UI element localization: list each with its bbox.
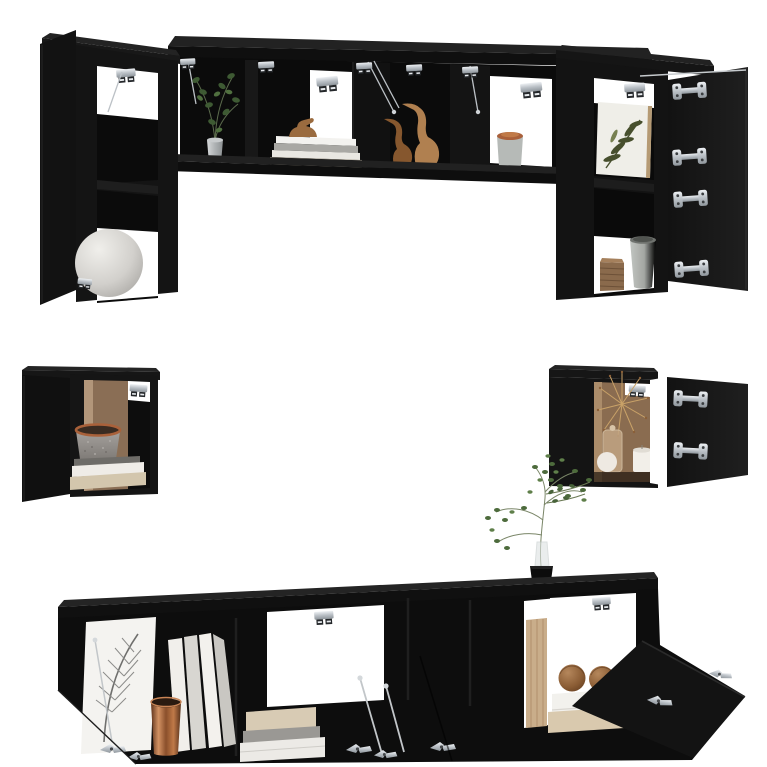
divider: [450, 64, 490, 166]
open-door: [22, 375, 70, 502]
divider: [245, 60, 258, 161]
wooden-sphere: [559, 665, 586, 692]
white-ball: [597, 452, 617, 472]
arm-joint: [392, 110, 396, 114]
book-stack: [70, 456, 146, 490]
glass-vase: [535, 542, 549, 566]
furniture-set-illustration: [0, 0, 767, 767]
open-door: [668, 67, 748, 291]
grey-cup: [630, 236, 656, 288]
pot-rim: [207, 138, 223, 143]
product-photo-stage: [0, 0, 767, 767]
ribbed-box: [600, 258, 624, 291]
stone-pot: [76, 425, 120, 462]
black-plant-pot-top: [530, 566, 553, 569]
book-stack-low: [240, 707, 325, 762]
wall-cabinet-upper-right: [556, 45, 748, 300]
wall-cabinet-upper-left: [40, 30, 180, 305]
arm-joint: [476, 110, 480, 114]
interior-floor-shadow: [594, 472, 650, 482]
leaf-artwork: [596, 102, 652, 178]
open-door: [40, 30, 76, 305]
tv-stand-bottom: [58, 454, 745, 764]
decor-sphere: [75, 229, 143, 297]
wall-cabinet-mid-right: [546, 365, 748, 504]
storage-canister: [497, 132, 523, 169]
open-gap: [650, 377, 667, 486]
wall-cabinet-mid-left: [22, 366, 160, 502]
copper-vase: [151, 698, 181, 756]
feather-artwork: [81, 617, 156, 754]
